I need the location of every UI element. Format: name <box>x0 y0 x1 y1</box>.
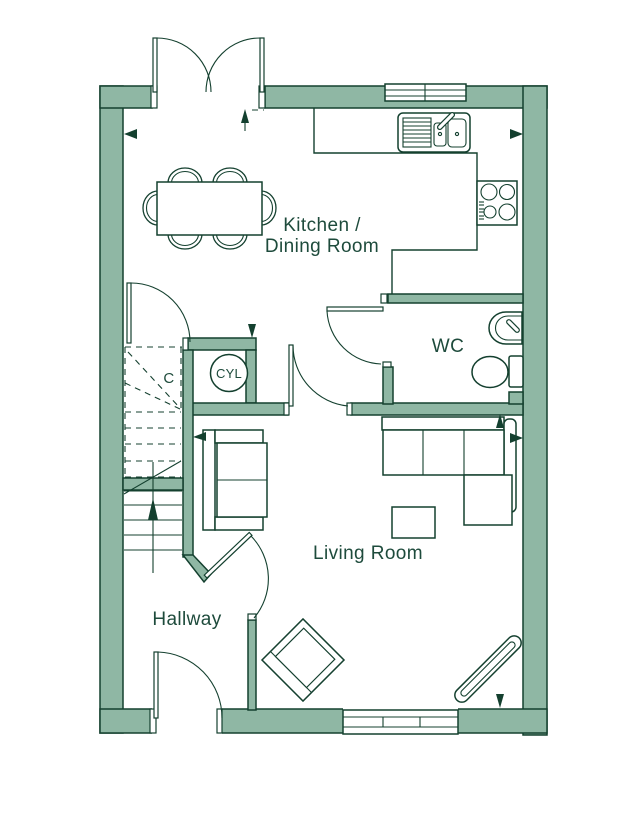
cupboard-dashed-stairs <box>125 347 182 477</box>
wall-wc-left <box>383 367 393 404</box>
floor-plan-svg: CYL Kitchen / Dining Room WC Living Room… <box>0 0 638 813</box>
kitchen-label-line1: Kitchen / <box>283 215 361 236</box>
kitchen-label-line2: Dining Room <box>265 236 379 257</box>
kitchen-sink <box>398 112 470 152</box>
sofa-arm-top <box>215 430 263 443</box>
wall-wc-top <box>388 294 523 303</box>
marker-left-wall <box>124 129 137 139</box>
dining-table <box>157 182 262 235</box>
wc-toilet <box>472 356 523 388</box>
wc-door <box>327 307 383 364</box>
corner-sofa-back <box>382 417 504 430</box>
living-window <box>343 710 458 734</box>
marker-bottom-wall <box>496 694 504 708</box>
living-room-label: Living Room <box>313 543 423 564</box>
corner-sofa-seats <box>383 430 504 475</box>
wall-stairs-side <box>183 350 193 557</box>
corner-sofa-chaise <box>464 475 512 525</box>
dining-chair <box>261 191 276 225</box>
wall-top-left <box>100 86 152 108</box>
french-doors <box>153 38 264 92</box>
wall-left <box>100 86 123 733</box>
cylinder-label: CYL <box>216 366 242 381</box>
wall-below-cyl <box>188 403 288 415</box>
coffee-table <box>392 507 435 538</box>
cylinder-symbol: CYL <box>211 355 248 392</box>
marker-top-wall <box>241 109 249 123</box>
two-seat-sofa <box>203 430 267 530</box>
sofa-arm-bottom <box>215 517 263 530</box>
french-door-leaf-right <box>260 38 264 92</box>
french-door-arc-right <box>206 38 260 92</box>
marker-right-wall-upper <box>510 129 523 139</box>
kitchen-window <box>385 84 466 101</box>
dining-set <box>143 168 276 249</box>
wc-label: WC <box>432 336 464 357</box>
wall-hall-partition <box>248 620 256 710</box>
marker-sofa-wall <box>193 432 206 441</box>
dining-chair <box>213 168 247 183</box>
dining-chair <box>168 168 202 183</box>
cupboard-door <box>127 283 190 343</box>
living-room-door <box>204 532 268 618</box>
wall-below-wc <box>351 403 523 415</box>
french-door-arc-left <box>157 38 211 92</box>
kitchen-hob <box>477 181 517 225</box>
radiator <box>452 633 524 705</box>
wall-right <box>523 86 547 735</box>
dining-chair <box>168 234 202 249</box>
front-door-opening <box>152 708 222 734</box>
hallway-label: Hallway <box>152 609 221 630</box>
armchair <box>262 619 344 701</box>
dining-living-door <box>289 345 348 406</box>
dining-chair <box>213 234 247 249</box>
cupboard-label: C <box>163 370 174 387</box>
wc-basin <box>489 312 522 344</box>
sofa-back <box>203 430 215 530</box>
wall-wc-corner-step <box>509 392 523 404</box>
marker-cyl-wall <box>248 324 256 338</box>
dining-chair <box>143 191 158 225</box>
stair-up-arrow <box>148 498 158 520</box>
wall-cyl-top <box>188 338 256 350</box>
french-door-leaf-left <box>153 38 157 92</box>
floor-plan-page: CYL Kitchen / Dining Room WC Living Room… <box>0 0 638 813</box>
